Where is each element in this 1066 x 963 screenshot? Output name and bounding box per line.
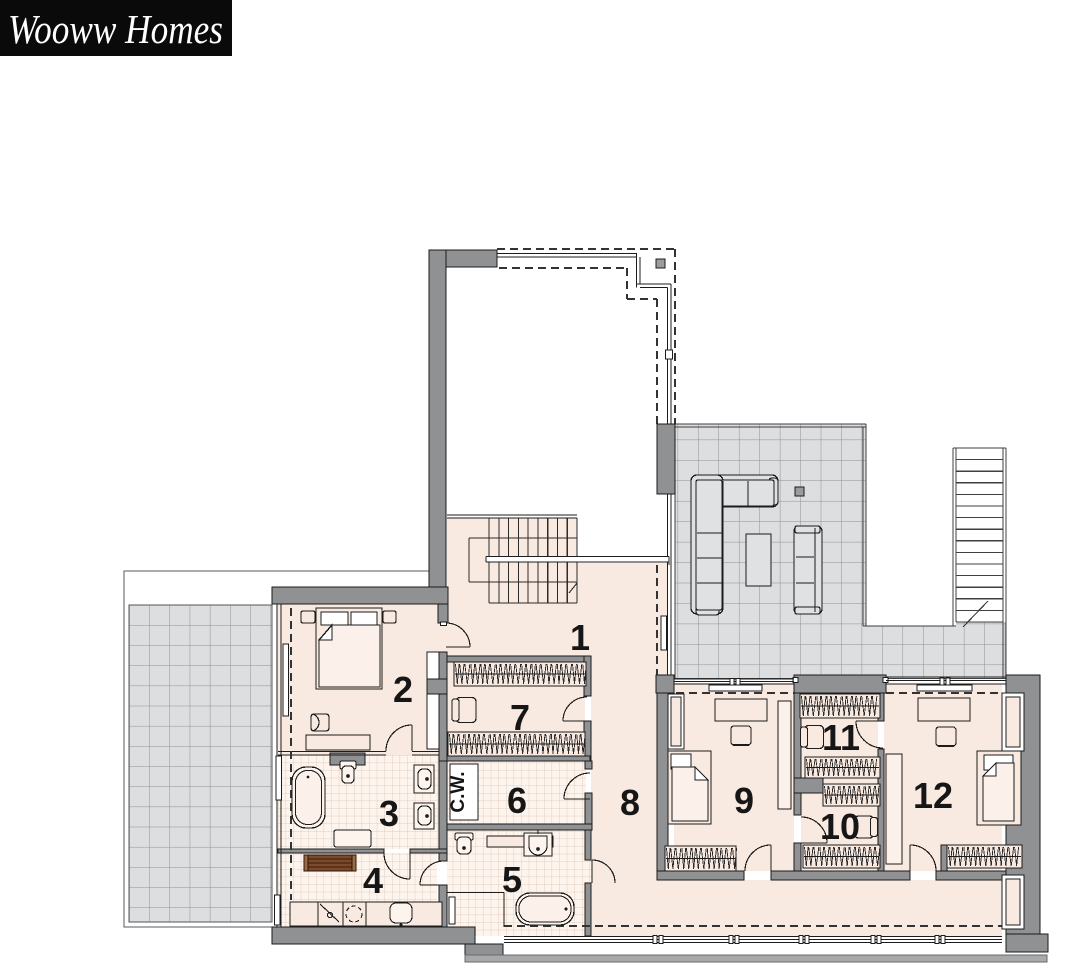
svg-text:12: 12 bbox=[913, 775, 953, 816]
svg-text:10: 10 bbox=[820, 806, 860, 847]
svg-text:8: 8 bbox=[620, 782, 640, 823]
svg-text:C.W.: C.W. bbox=[448, 771, 469, 812]
svg-text:11: 11 bbox=[822, 717, 860, 758]
svg-text:6: 6 bbox=[507, 780, 527, 821]
svg-text:9: 9 bbox=[734, 780, 754, 821]
svg-text:3: 3 bbox=[379, 793, 399, 834]
svg-text:2: 2 bbox=[393, 669, 413, 710]
svg-text:Wooww Homes: Wooww Homes bbox=[8, 6, 223, 52]
svg-text:5: 5 bbox=[502, 859, 522, 900]
svg-text:7: 7 bbox=[510, 697, 530, 738]
svg-text:4: 4 bbox=[363, 860, 383, 901]
svg-text:1: 1 bbox=[570, 617, 590, 658]
